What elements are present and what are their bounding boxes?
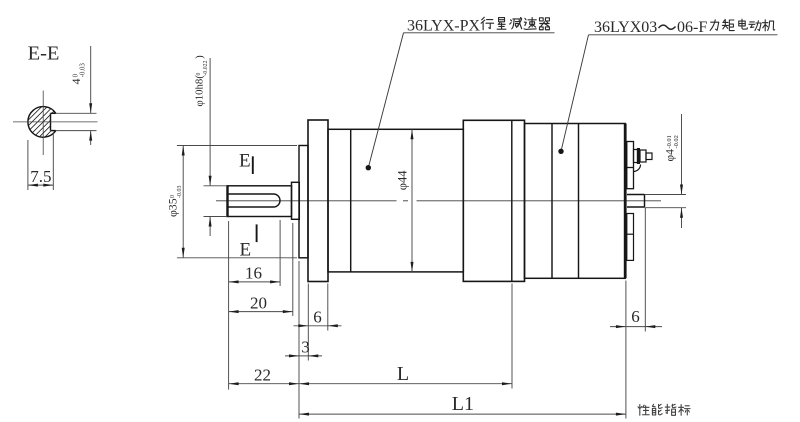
- svg-text:-0.01: -0.01: [666, 135, 673, 148]
- svg-text:L1: L1: [452, 393, 474, 415]
- svg-text:L: L: [397, 363, 409, 385]
- svg-text:0: 0: [196, 73, 202, 76]
- svg-text:-0.02: -0.02: [673, 135, 680, 148]
- svg-text:E: E: [239, 151, 251, 172]
- svg-text:20: 20: [250, 294, 267, 313]
- svg-text:φ4: φ4: [665, 149, 677, 162]
- svg-text:E-E: E-E: [28, 43, 60, 65]
- svg-text:φ44: φ44: [396, 170, 410, 190]
- svg-text:36LYX03: 36LYX03: [594, 19, 657, 36]
- svg-text:7.5: 7.5: [30, 167, 51, 186]
- svg-text:-0.03: -0.03: [79, 63, 86, 78]
- svg-text:22: 22: [254, 366, 271, 385]
- svg-text:0: 0: [72, 73, 79, 77]
- svg-text:6: 6: [631, 307, 640, 326]
- svg-text:4: 4: [69, 79, 83, 85]
- svg-text:-0.022: -0.022: [203, 60, 209, 75]
- svg-text:-0.03: -0.03: [177, 186, 183, 199]
- svg-text:16: 16: [245, 264, 262, 283]
- svg-text:0: 0: [170, 195, 176, 198]
- svg-text:36LYX-PX: 36LYX-PX: [407, 18, 481, 35]
- svg-text:06-F: 06-F: [677, 19, 707, 36]
- svg-text:): ): [194, 55, 206, 59]
- svg-text:E: E: [239, 239, 251, 260]
- svg-text:6: 6: [313, 308, 322, 327]
- svg-text:φ10h8(: φ10h8(: [194, 75, 206, 107]
- svg-text:3: 3: [301, 338, 310, 357]
- svg-text:φ35: φ35: [166, 198, 180, 217]
